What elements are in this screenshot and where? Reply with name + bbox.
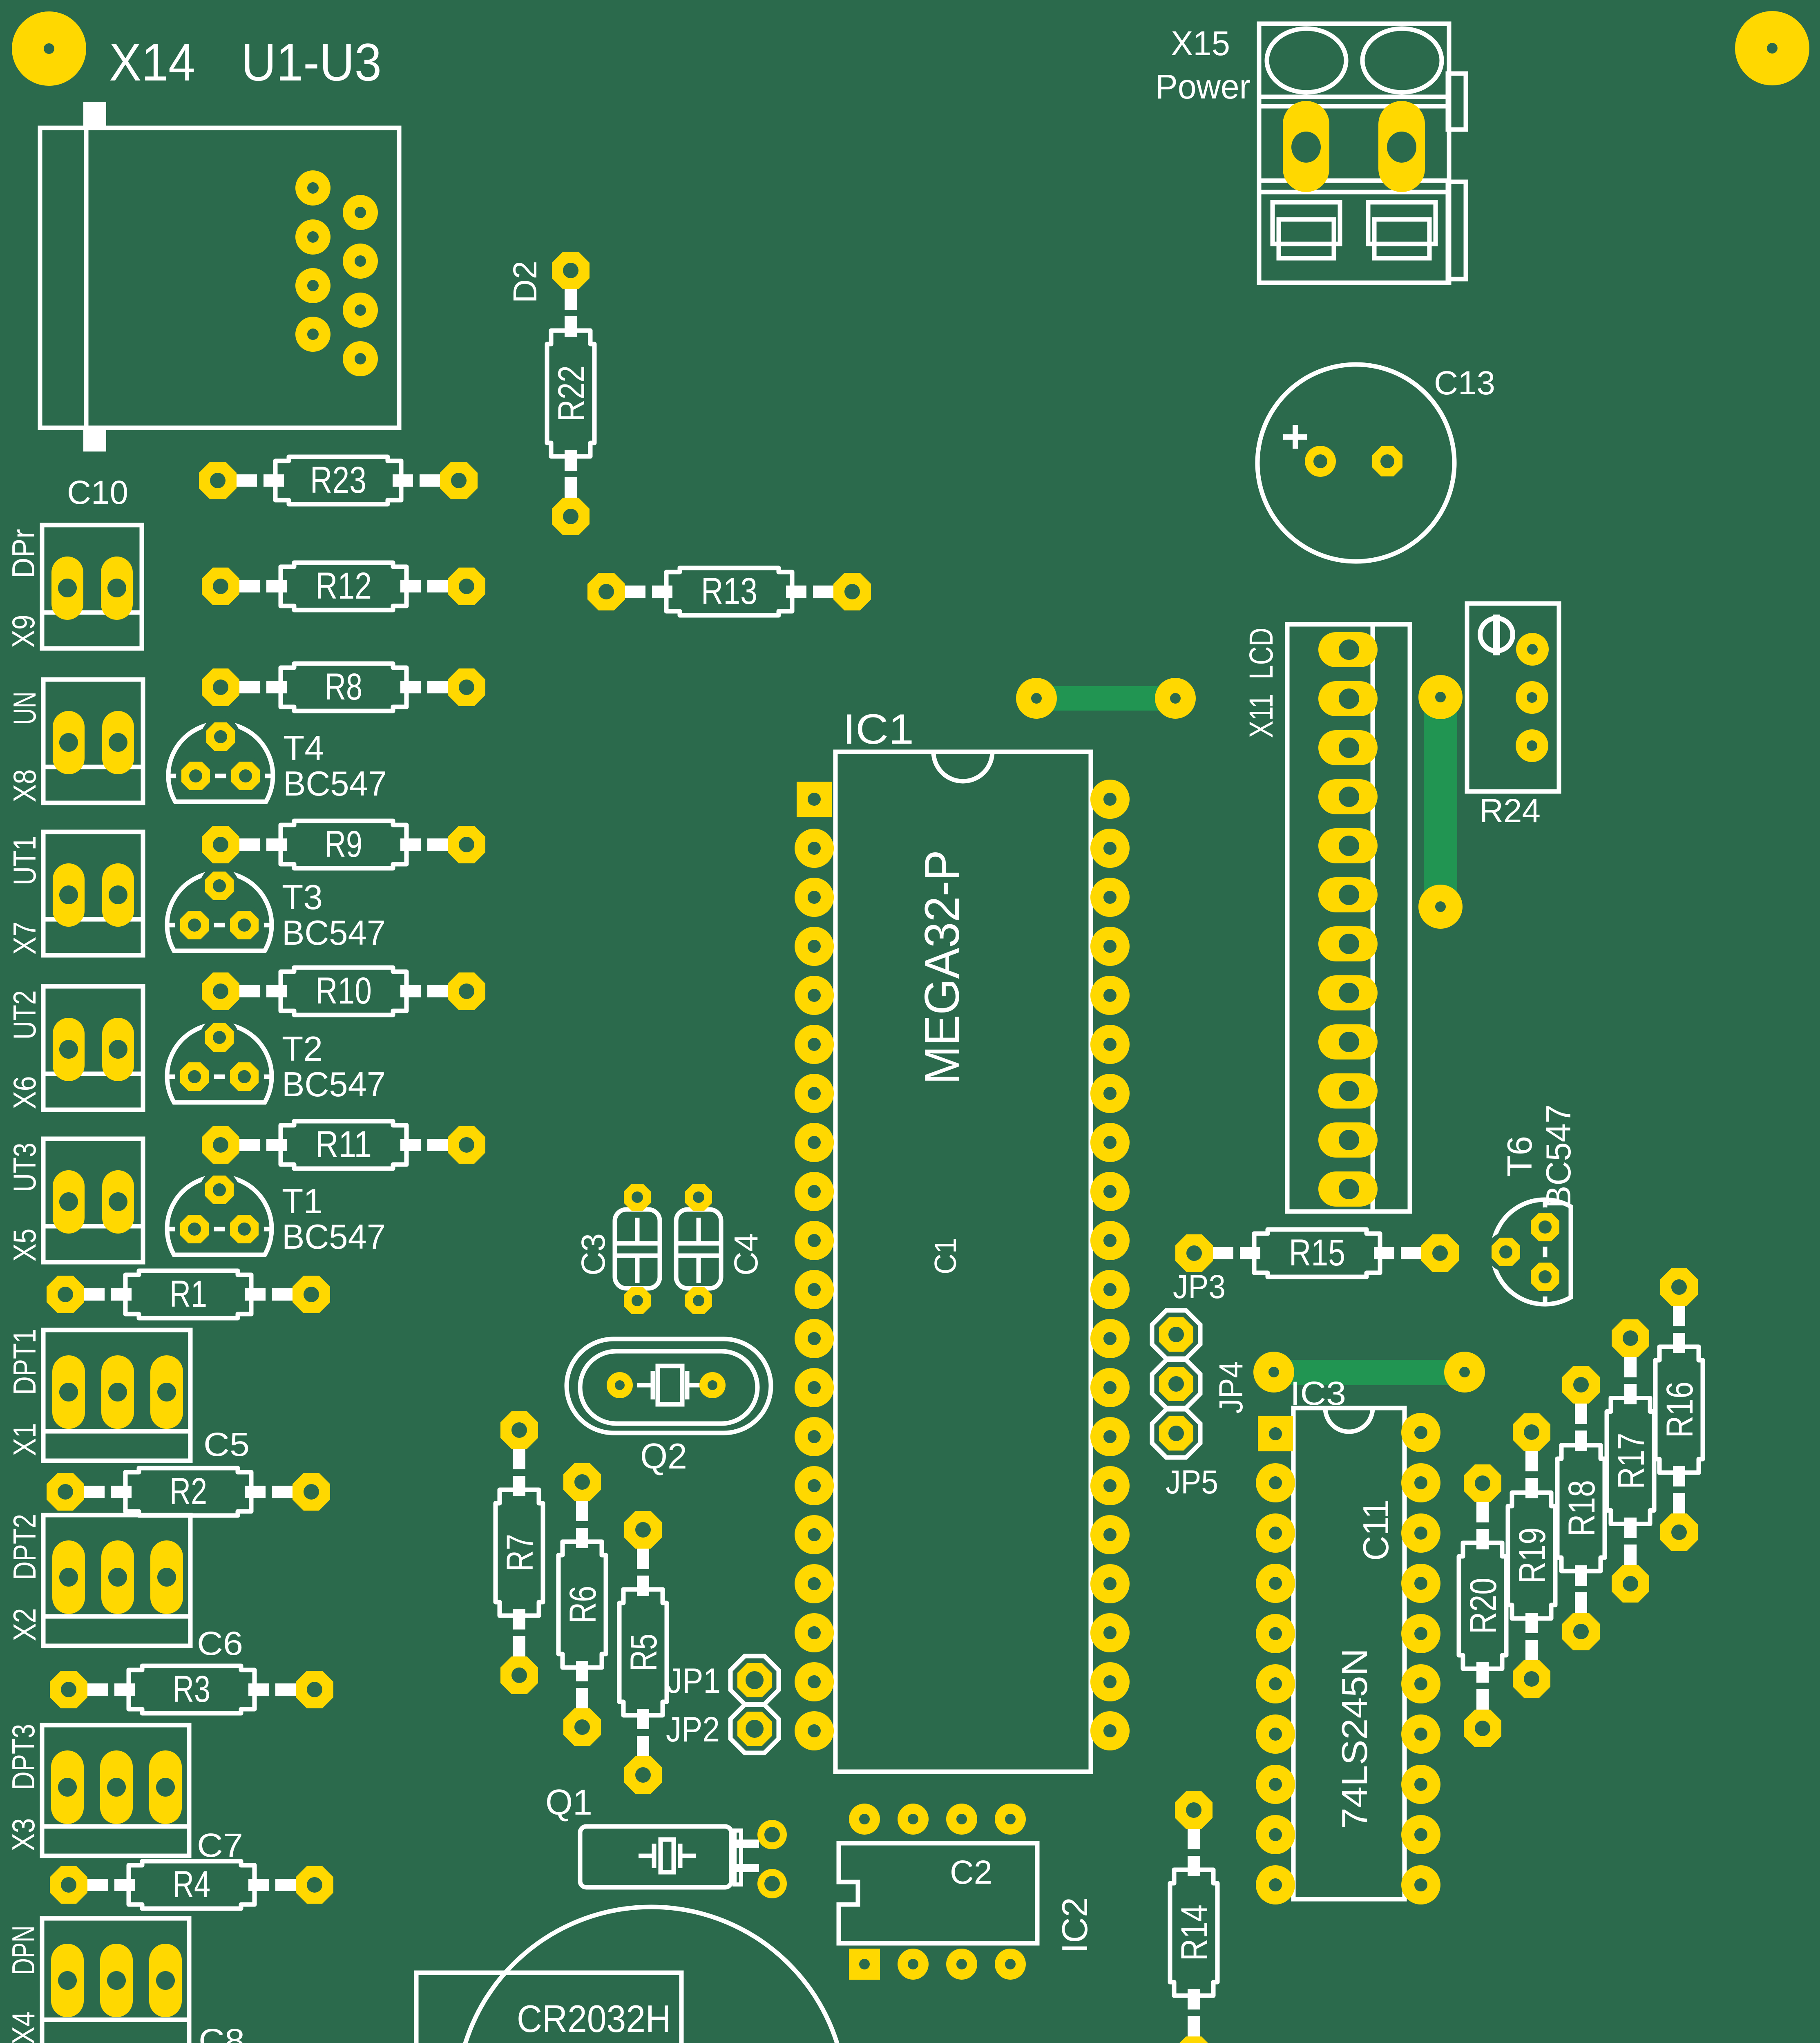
svg-text:74LS245N: 74LS245N (1334, 1648, 1375, 1829)
svg-text:X3: X3 (5, 1818, 41, 1851)
svg-text:T6: T6 (1501, 1136, 1539, 1177)
svg-text:Q2: Q2 (640, 1436, 687, 1476)
svg-text:R24: R24 (1479, 792, 1541, 829)
svg-text:UT2: UT2 (7, 990, 42, 1040)
svg-text:C1: C1 (928, 1238, 962, 1274)
svg-text:R23: R23 (310, 459, 366, 501)
svg-text:X5: X5 (7, 1229, 42, 1262)
svg-text:DPT3: DPT3 (5, 1724, 41, 1790)
svg-text:R5: R5 (623, 1634, 665, 1671)
svg-text:X11 LCD: X11 LCD (1243, 628, 1280, 738)
svg-text:R17: R17 (1610, 1433, 1652, 1489)
svg-text:JP3: JP3 (1173, 1268, 1226, 1305)
svg-text:DPr: DPr (5, 529, 41, 579)
svg-text:C3: C3 (575, 1233, 612, 1276)
svg-text:C2: C2 (950, 1854, 992, 1891)
svg-text:R4: R4 (173, 1864, 210, 1905)
svg-text:X14: X14 (109, 32, 195, 92)
svg-text:X15: X15 (1171, 24, 1230, 63)
svg-text:R6: R6 (562, 1586, 604, 1623)
svg-text:D2: D2 (507, 261, 544, 303)
svg-text:R22: R22 (551, 365, 592, 422)
svg-text:R14: R14 (1174, 1904, 1215, 1961)
svg-text:R15: R15 (1289, 1232, 1345, 1274)
svg-text:DPT2: DPT2 (7, 1514, 42, 1580)
svg-text:Power: Power (1155, 67, 1251, 106)
svg-text:T4: T4 (283, 729, 324, 768)
svg-text:C8: C8 (199, 2022, 245, 2043)
svg-text:X1: X1 (7, 1423, 42, 1456)
svg-text:C7: C7 (197, 1827, 243, 1864)
svg-text:R19: R19 (1512, 1527, 1553, 1584)
svg-text:IC1: IC1 (843, 706, 914, 753)
svg-text:C13: C13 (1434, 364, 1495, 402)
svg-text:X8: X8 (7, 769, 42, 802)
svg-text:T2: T2 (282, 1030, 323, 1068)
svg-text:MEGA32-P: MEGA32-P (915, 850, 969, 1084)
svg-text:UT3: UT3 (7, 1143, 42, 1192)
svg-text:CR2032H: CR2032H (517, 1997, 671, 2040)
svg-text:DPT1: DPT1 (7, 1329, 42, 1395)
svg-text:R13: R13 (701, 570, 757, 612)
svg-text:IC3: IC3 (1290, 1375, 1346, 1412)
svg-text:JP4: JP4 (1213, 1361, 1250, 1414)
svg-text:X9: X9 (5, 615, 41, 648)
svg-text:R10: R10 (315, 970, 372, 1012)
svg-text:R9: R9 (325, 823, 362, 865)
svg-text:R1: R1 (170, 1273, 207, 1315)
svg-text:DPN: DPN (5, 1926, 41, 1975)
svg-text:BC547: BC547 (1539, 1104, 1578, 1208)
svg-text:JP5: JP5 (1166, 1464, 1218, 1501)
svg-text:R8: R8 (325, 666, 362, 708)
svg-text:X6: X6 (7, 1076, 42, 1109)
svg-text:R11: R11 (315, 1124, 372, 1165)
svg-text:R16: R16 (1659, 1381, 1701, 1438)
svg-text:U1-U3: U1-U3 (241, 32, 382, 92)
svg-text:C10: C10 (67, 474, 128, 511)
svg-text:R2: R2 (170, 1471, 207, 1512)
svg-text:X4: X4 (5, 2012, 41, 2043)
svg-text:R20: R20 (1463, 1578, 1504, 1634)
svg-text:BC547: BC547 (282, 1218, 386, 1256)
svg-text:JP2: JP2 (666, 1710, 720, 1749)
svg-text:C4: C4 (728, 1233, 765, 1276)
svg-text:X7: X7 (7, 922, 42, 955)
svg-text:X2: X2 (7, 1608, 42, 1641)
svg-text:T1: T1 (282, 1182, 323, 1221)
svg-text:R3: R3 (173, 1668, 210, 1710)
svg-text:R18: R18 (1561, 1480, 1603, 1536)
svg-text:R12: R12 (315, 565, 372, 607)
svg-text:R7: R7 (499, 1534, 541, 1571)
svg-text:T3: T3 (282, 878, 323, 917)
svg-text:BC547: BC547 (283, 764, 387, 803)
svg-text:IC2: IC2 (1054, 1897, 1095, 1953)
svg-text:UT1: UT1 (7, 836, 42, 885)
svg-text:C11: C11 (1356, 1500, 1396, 1561)
svg-text:C5: C5 (203, 1426, 250, 1463)
svg-text:BC547: BC547 (282, 1065, 386, 1104)
svg-text:BC547: BC547 (282, 914, 386, 952)
svg-text:JP1: JP1 (667, 1661, 721, 1701)
svg-text:UN: UN (7, 692, 42, 725)
svg-text:Q1: Q1 (545, 1782, 592, 1822)
svg-text:C6: C6 (197, 1625, 243, 1662)
